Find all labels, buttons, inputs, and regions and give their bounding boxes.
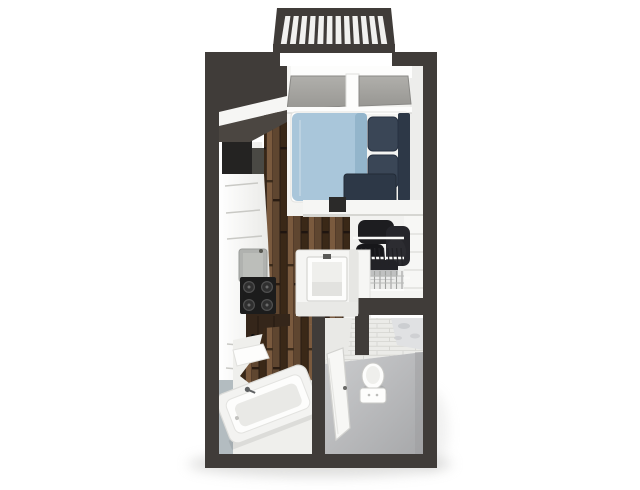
sink-basin <box>243 253 263 278</box>
bathroom-floor-edge-shade <box>415 352 423 454</box>
headboard <box>398 113 410 201</box>
vanity-basin-shade <box>312 282 342 296</box>
left-wall <box>205 52 219 468</box>
bed <box>291 112 410 204</box>
bedroom-right-wall-face <box>410 66 423 216</box>
sliding-door-glass-left <box>287 76 346 110</box>
bedroom <box>278 66 423 216</box>
burner-center <box>266 304 269 307</box>
baluster <box>325 14 326 45</box>
burner-center <box>266 286 269 289</box>
vanity-faucet <box>323 254 331 259</box>
vanity <box>296 250 358 316</box>
bathroom-wall-stub <box>355 315 369 355</box>
floor-plan-render <box>0 0 640 490</box>
pillow-1 <box>368 117 398 151</box>
toilet-button <box>368 394 371 397</box>
vanity-front-face <box>296 302 358 316</box>
toilet-tank <box>360 388 386 403</box>
stool <box>329 197 346 212</box>
upper-cabinet-dark <box>252 148 264 174</box>
baluster <box>351 14 353 45</box>
toilet-seat <box>366 366 380 384</box>
baluster <box>342 14 343 45</box>
sink-faucet-icon <box>259 249 263 253</box>
railing-top-bar <box>277 8 391 16</box>
sliding-door-glass-right <box>359 76 411 106</box>
burner-center <box>248 304 251 307</box>
sliding-door-mullion <box>346 74 359 108</box>
floor-plan <box>0 0 640 490</box>
toilet-button <box>376 394 379 397</box>
door-handle <box>343 386 347 390</box>
burner-center <box>248 286 251 289</box>
baluster <box>316 14 318 45</box>
foot-bench <box>344 174 396 204</box>
balcony <box>273 8 395 53</box>
railing-bottom-bar <box>273 44 395 53</box>
bottom-wall <box>205 454 437 468</box>
cooktop <box>240 277 276 314</box>
bedroom-partition <box>303 197 423 217</box>
room-divider-wall <box>312 312 325 454</box>
right-wall <box>423 52 437 468</box>
